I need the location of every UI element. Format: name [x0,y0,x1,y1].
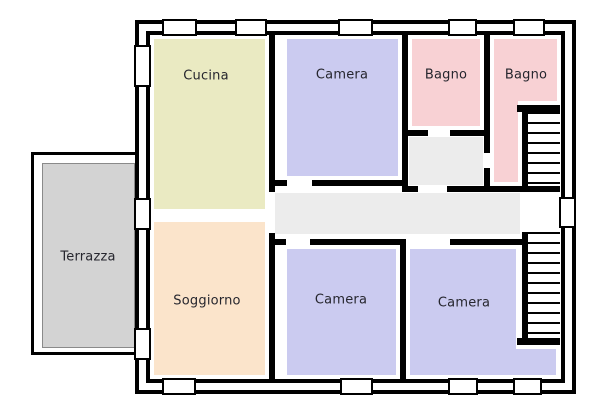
room-fill-cucina [154,39,265,209]
label-camera-top: Camera [316,68,368,83]
label-camera-bottom-right: Camera [438,296,490,311]
window [513,378,542,395]
window [162,378,196,395]
interior-wall [312,180,408,186]
window [559,197,576,228]
window [134,45,151,87]
window [338,19,373,36]
staircase-lower-flight [528,232,560,338]
interior-wall [402,186,418,192]
interior-wall [450,239,522,245]
room-fill-camera-bottom-right-understair [516,349,556,375]
corridor-fill [275,193,520,234]
terrace-door [134,328,151,360]
window [448,19,477,36]
label-soggiorno: Soggiorno [173,294,240,309]
floor-plan: Cucina Camera Bagno Bagno Terrazza Soggi… [0,0,600,420]
label-bagno-left: Bagno [425,68,467,83]
interior-wall [402,130,428,136]
interior-wall [447,186,560,192]
window [162,19,197,36]
terrace-door [134,198,151,230]
label-bagno-right: Bagno [505,68,547,83]
stair-bottom-wall [517,338,560,345]
window [448,378,478,395]
interior-wall [400,239,406,379]
interior-wall [484,35,490,153]
room-fill-bagno-left [412,39,480,126]
interior-wall [402,35,408,192]
interior-wall [269,233,275,379]
vestibule-fill [409,137,483,185]
interior-wall [310,239,402,245]
room-fill-camera-bottom-right [410,249,516,375]
staircase-upper-flight [528,112,560,186]
window [513,19,545,36]
room-fill-camera-top [287,39,398,176]
window [235,19,267,36]
interior-wall [275,180,287,186]
label-camera-bottom-left: Camera [315,293,367,308]
interior-wall [275,239,286,245]
room-fill-bagno-right-lower [494,101,518,182]
room-fill-camera-bottom-left [287,249,396,375]
label-cucina: Cucina [183,69,228,84]
window [340,378,373,395]
interior-wall [269,35,275,192]
label-terrazza: Terrazza [60,250,115,265]
